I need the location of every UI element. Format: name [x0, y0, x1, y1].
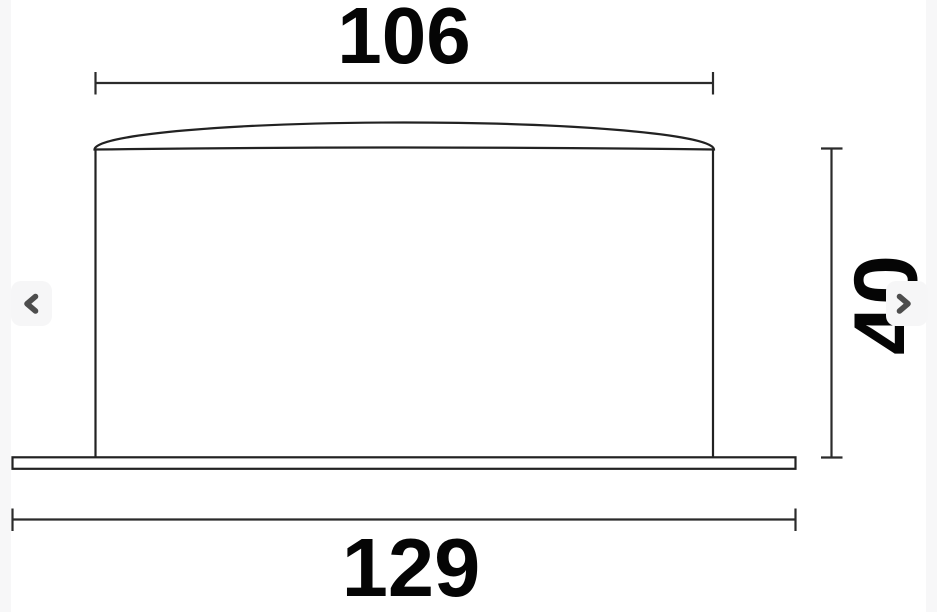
- svg-text:106: 106: [337, 0, 470, 80]
- svg-text:129: 129: [342, 521, 480, 612]
